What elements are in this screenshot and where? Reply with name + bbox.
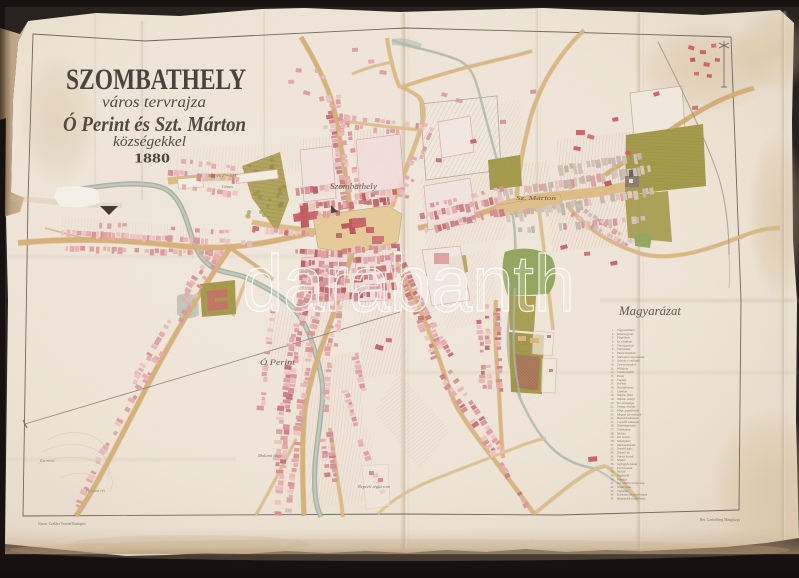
svg-text:darabanth: darabanth [242,239,575,328]
